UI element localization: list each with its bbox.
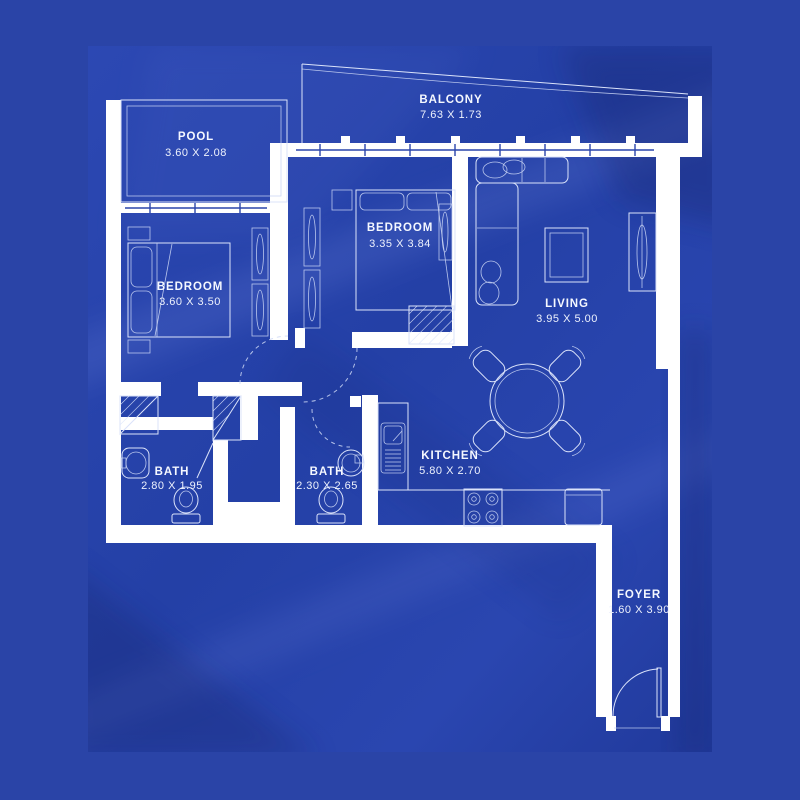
room-dims: 5.80 X 2.70: [419, 465, 481, 477]
room-dims: 3.60 X 2.08: [165, 147, 227, 159]
wall-segment: [362, 395, 378, 543]
room-label: BATH: [310, 466, 345, 478]
wall-segment: [121, 382, 161, 396]
fold-shadow: [676, 330, 714, 760]
wall-segment: [668, 369, 680, 717]
wall-segment: [106, 100, 121, 543]
room-dims: 3.35 X 3.84: [369, 238, 431, 250]
room-dims: 7.63 X 1.73: [420, 109, 482, 121]
room-label: POOL: [178, 131, 214, 143]
wall-segment: [270, 143, 288, 340]
wall-segment: [215, 502, 295, 543]
wall-segment: [661, 716, 670, 731]
floorplan-image: POOL 3.60 X 2.08 BALCONY 7.63 X 1.73: [0, 0, 800, 800]
room-label: BALCONY: [419, 94, 482, 106]
room-dims: 3.60 X 3.50: [159, 296, 221, 308]
wall-segment: [596, 543, 612, 717]
room-dims: 2.30 X 2.65: [296, 480, 358, 492]
door-jamb: [295, 328, 305, 348]
room-label: FOYER: [617, 589, 661, 601]
room-label: BATH: [155, 466, 190, 478]
room-dims: 3.95 X 5.00: [536, 313, 598, 325]
room-label: KITCHEN: [421, 450, 478, 462]
wall-segment: [606, 716, 616, 731]
room-dims: 1.60 X 3.90: [608, 604, 670, 616]
wall-segment: [106, 525, 216, 543]
room-label: BEDROOM: [367, 222, 433, 234]
wall-segment: [240, 382, 258, 440]
door-jamb: [350, 396, 361, 407]
room-label: LIVING: [545, 298, 589, 310]
bed-bench-hatched: [409, 306, 454, 344]
wall-segment: [656, 143, 680, 369]
room-label: BEDROOM: [157, 281, 223, 293]
wall-segment: [688, 96, 702, 152]
wall-segment: [295, 525, 612, 543]
room-dims: 2.80 X 1.95: [141, 480, 203, 492]
